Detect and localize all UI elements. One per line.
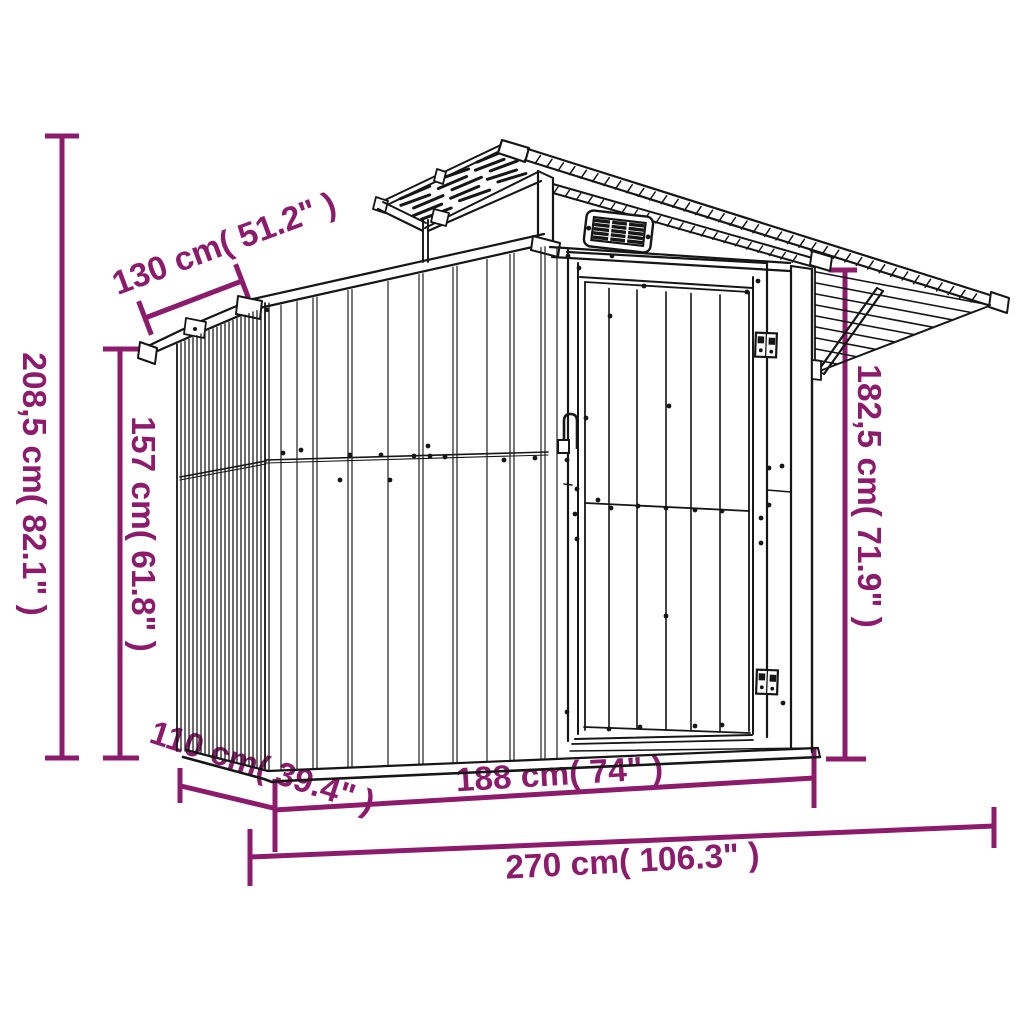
svg-text:208,5 cm( 82.1" ): 208,5 cm( 82.1" ) [15, 352, 52, 616]
svg-text:157 cm( 61.8" ): 157 cm( 61.8" ) [124, 416, 161, 652]
svg-text:182,5 cm( 71.9" ): 182,5 cm( 71.9" ) [850, 364, 887, 628]
